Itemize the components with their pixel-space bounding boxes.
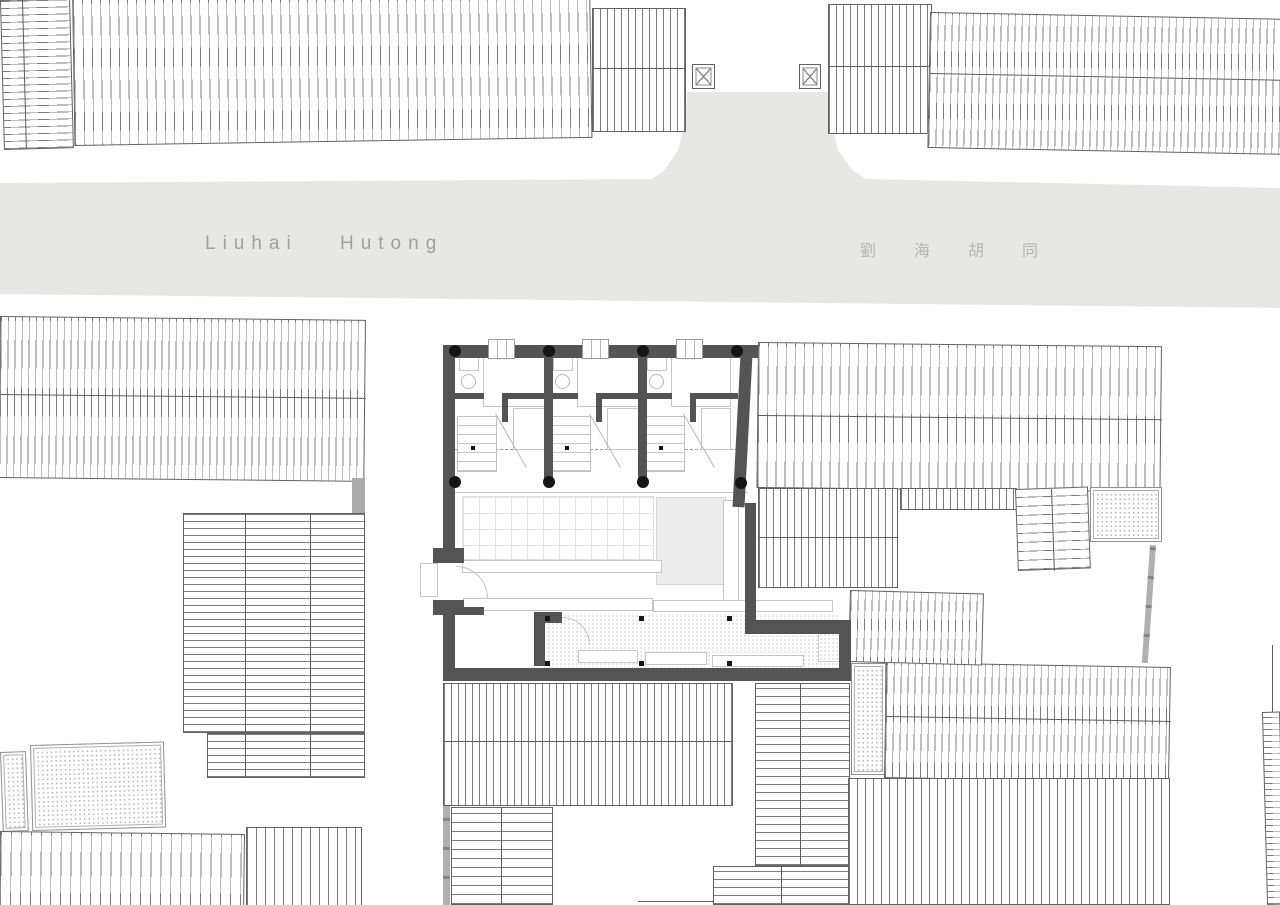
column-top-3 <box>637 345 649 357</box>
roof-south-center-lower-divider <box>501 807 502 905</box>
bath-counter-unit2 <box>553 357 573 371</box>
column-mid-2 <box>543 476 555 488</box>
wall-east-edge-line <box>1272 645 1273 712</box>
partition-1 <box>544 356 553 484</box>
shelf-wall-east <box>723 500 739 610</box>
counter-a <box>462 560 662 573</box>
roof-southwest-main <box>0 316 366 482</box>
cabinet-unit1 <box>513 408 545 450</box>
site-plan-stage: Liuhai Hutong 劉海胡同 <box>0 0 1280 905</box>
floor-shade <box>656 497 726 585</box>
column-mid-3 <box>637 476 649 488</box>
bath-wall-right-unit3 <box>690 393 738 399</box>
bath-wall-left-unit2 <box>548 393 578 399</box>
column-top-4 <box>731 345 743 357</box>
roof-east-strip <box>900 488 1017 510</box>
window-unit3 <box>676 339 703 359</box>
bench-1 <box>578 650 638 663</box>
roof-southeast-upper <box>884 662 1171 783</box>
basin-unit2 <box>555 374 570 389</box>
post-dot-unit2 <box>565 446 569 450</box>
partition-2 <box>638 356 647 484</box>
bench-2 <box>645 652 707 665</box>
roof-northwest-small <box>0 0 74 150</box>
roof-south-step-c-edge <box>638 901 714 902</box>
column-mid-4 <box>735 477 747 489</box>
roof-southeast-lower <box>848 778 1170 905</box>
window-unit1 <box>488 339 515 359</box>
crossed-square-marker-east <box>799 64 821 89</box>
cabinet-unit2 <box>607 408 639 450</box>
bath-wall-left-unit3 <box>642 393 672 399</box>
bath-counter-unit3 <box>647 357 667 371</box>
column-top-1 <box>449 345 461 357</box>
roof-northeast-a-ridge <box>828 66 932 67</box>
veranda-line <box>455 492 748 493</box>
paving-east <box>1090 487 1162 542</box>
basin-unit1 <box>461 374 476 389</box>
wall-right-lower <box>745 503 756 625</box>
bath-counter-unit1 <box>459 357 479 371</box>
roof-east-edge-sliver <box>1262 712 1280 905</box>
bench-3 <box>712 655 804 667</box>
bath-wall-return-unit3 <box>690 399 696 422</box>
bath-wall-return-unit1 <box>502 399 508 422</box>
roof-south-step-b-divider <box>781 866 782 905</box>
bed-unit3 <box>671 357 731 407</box>
roof-south-center <box>443 683 733 806</box>
roof-north-small <box>592 8 686 132</box>
roof-south-center-ridge <box>443 741 733 742</box>
roof-northeast-main <box>927 12 1280 155</box>
stack-divider-1 <box>245 513 246 778</box>
street-label-english: Liuhai Hutong <box>205 233 443 255</box>
stairs-unit2 <box>551 416 591 472</box>
roof-southwest-bottom-a <box>0 831 245 905</box>
entry-canopy <box>420 563 438 597</box>
stairs-unit3 <box>645 416 685 472</box>
post-dot-unit1 <box>471 446 475 450</box>
wall-door-flange-upper <box>433 548 464 563</box>
stack-divider-2 <box>310 513 311 778</box>
column-top-2 <box>543 345 555 357</box>
terrace-post-3 <box>727 616 732 621</box>
bath-wall-right-unit1 <box>502 393 549 399</box>
terrace-post-5 <box>639 661 644 666</box>
roof-northeast-a <box>828 4 932 134</box>
terrace-post-6 <box>727 661 732 666</box>
roof-east-lower <box>848 590 984 665</box>
wall-left-upper <box>443 345 455 550</box>
bed-unit2 <box>577 357 639 407</box>
roof-east-band-ridge <box>758 537 898 538</box>
terrace-post-4 <box>545 661 550 666</box>
roof-south-center-lower <box>451 807 553 905</box>
bath-wall-right-unit2 <box>596 393 643 399</box>
window-unit2 <box>582 339 609 359</box>
wall-L-vertical <box>534 612 545 666</box>
wall-bottom-east <box>745 620 851 634</box>
terrace-post-2 <box>639 616 644 621</box>
roof-east-band <box>758 488 898 588</box>
roof-southwest-stack-lower <box>207 733 365 778</box>
basin-unit3 <box>649 374 664 389</box>
counter-b <box>463 598 653 611</box>
fence-east <box>1142 545 1156 663</box>
paving-southeast <box>851 663 886 775</box>
wall-bottom <box>443 668 851 681</box>
wall-connector-gray <box>352 478 365 513</box>
post-dot-unit3 <box>659 446 663 450</box>
roof-north-main <box>72 0 592 146</box>
floor-grid <box>462 496 654 560</box>
terrace-post-1 <box>545 616 550 621</box>
bath-wall-left-unit1 <box>454 393 484 399</box>
crossed-square-marker-west <box>692 64 715 89</box>
wall-nub <box>464 607 484 615</box>
stairs-unit1 <box>457 416 497 472</box>
cabinet-unit3 <box>701 408 731 450</box>
roof-southwest-stack-upper <box>183 513 365 733</box>
counter-c <box>653 600 833 612</box>
column-mid-1 <box>449 476 461 488</box>
roof-southwest-bottom-b <box>246 827 362 905</box>
roof-north-small-ridge <box>592 68 686 69</box>
roof-south-step-a <box>755 683 850 866</box>
wall-south-gray-strip <box>443 806 450 905</box>
bath-wall-return-unit2 <box>596 399 602 422</box>
paving-southwest-small <box>0 751 29 832</box>
roof-south-step-a-divider <box>800 683 801 866</box>
bed-unit1 <box>483 357 545 407</box>
street-label-chinese: 劉海胡同 <box>860 237 1076 261</box>
paving-southwest <box>30 741 166 830</box>
